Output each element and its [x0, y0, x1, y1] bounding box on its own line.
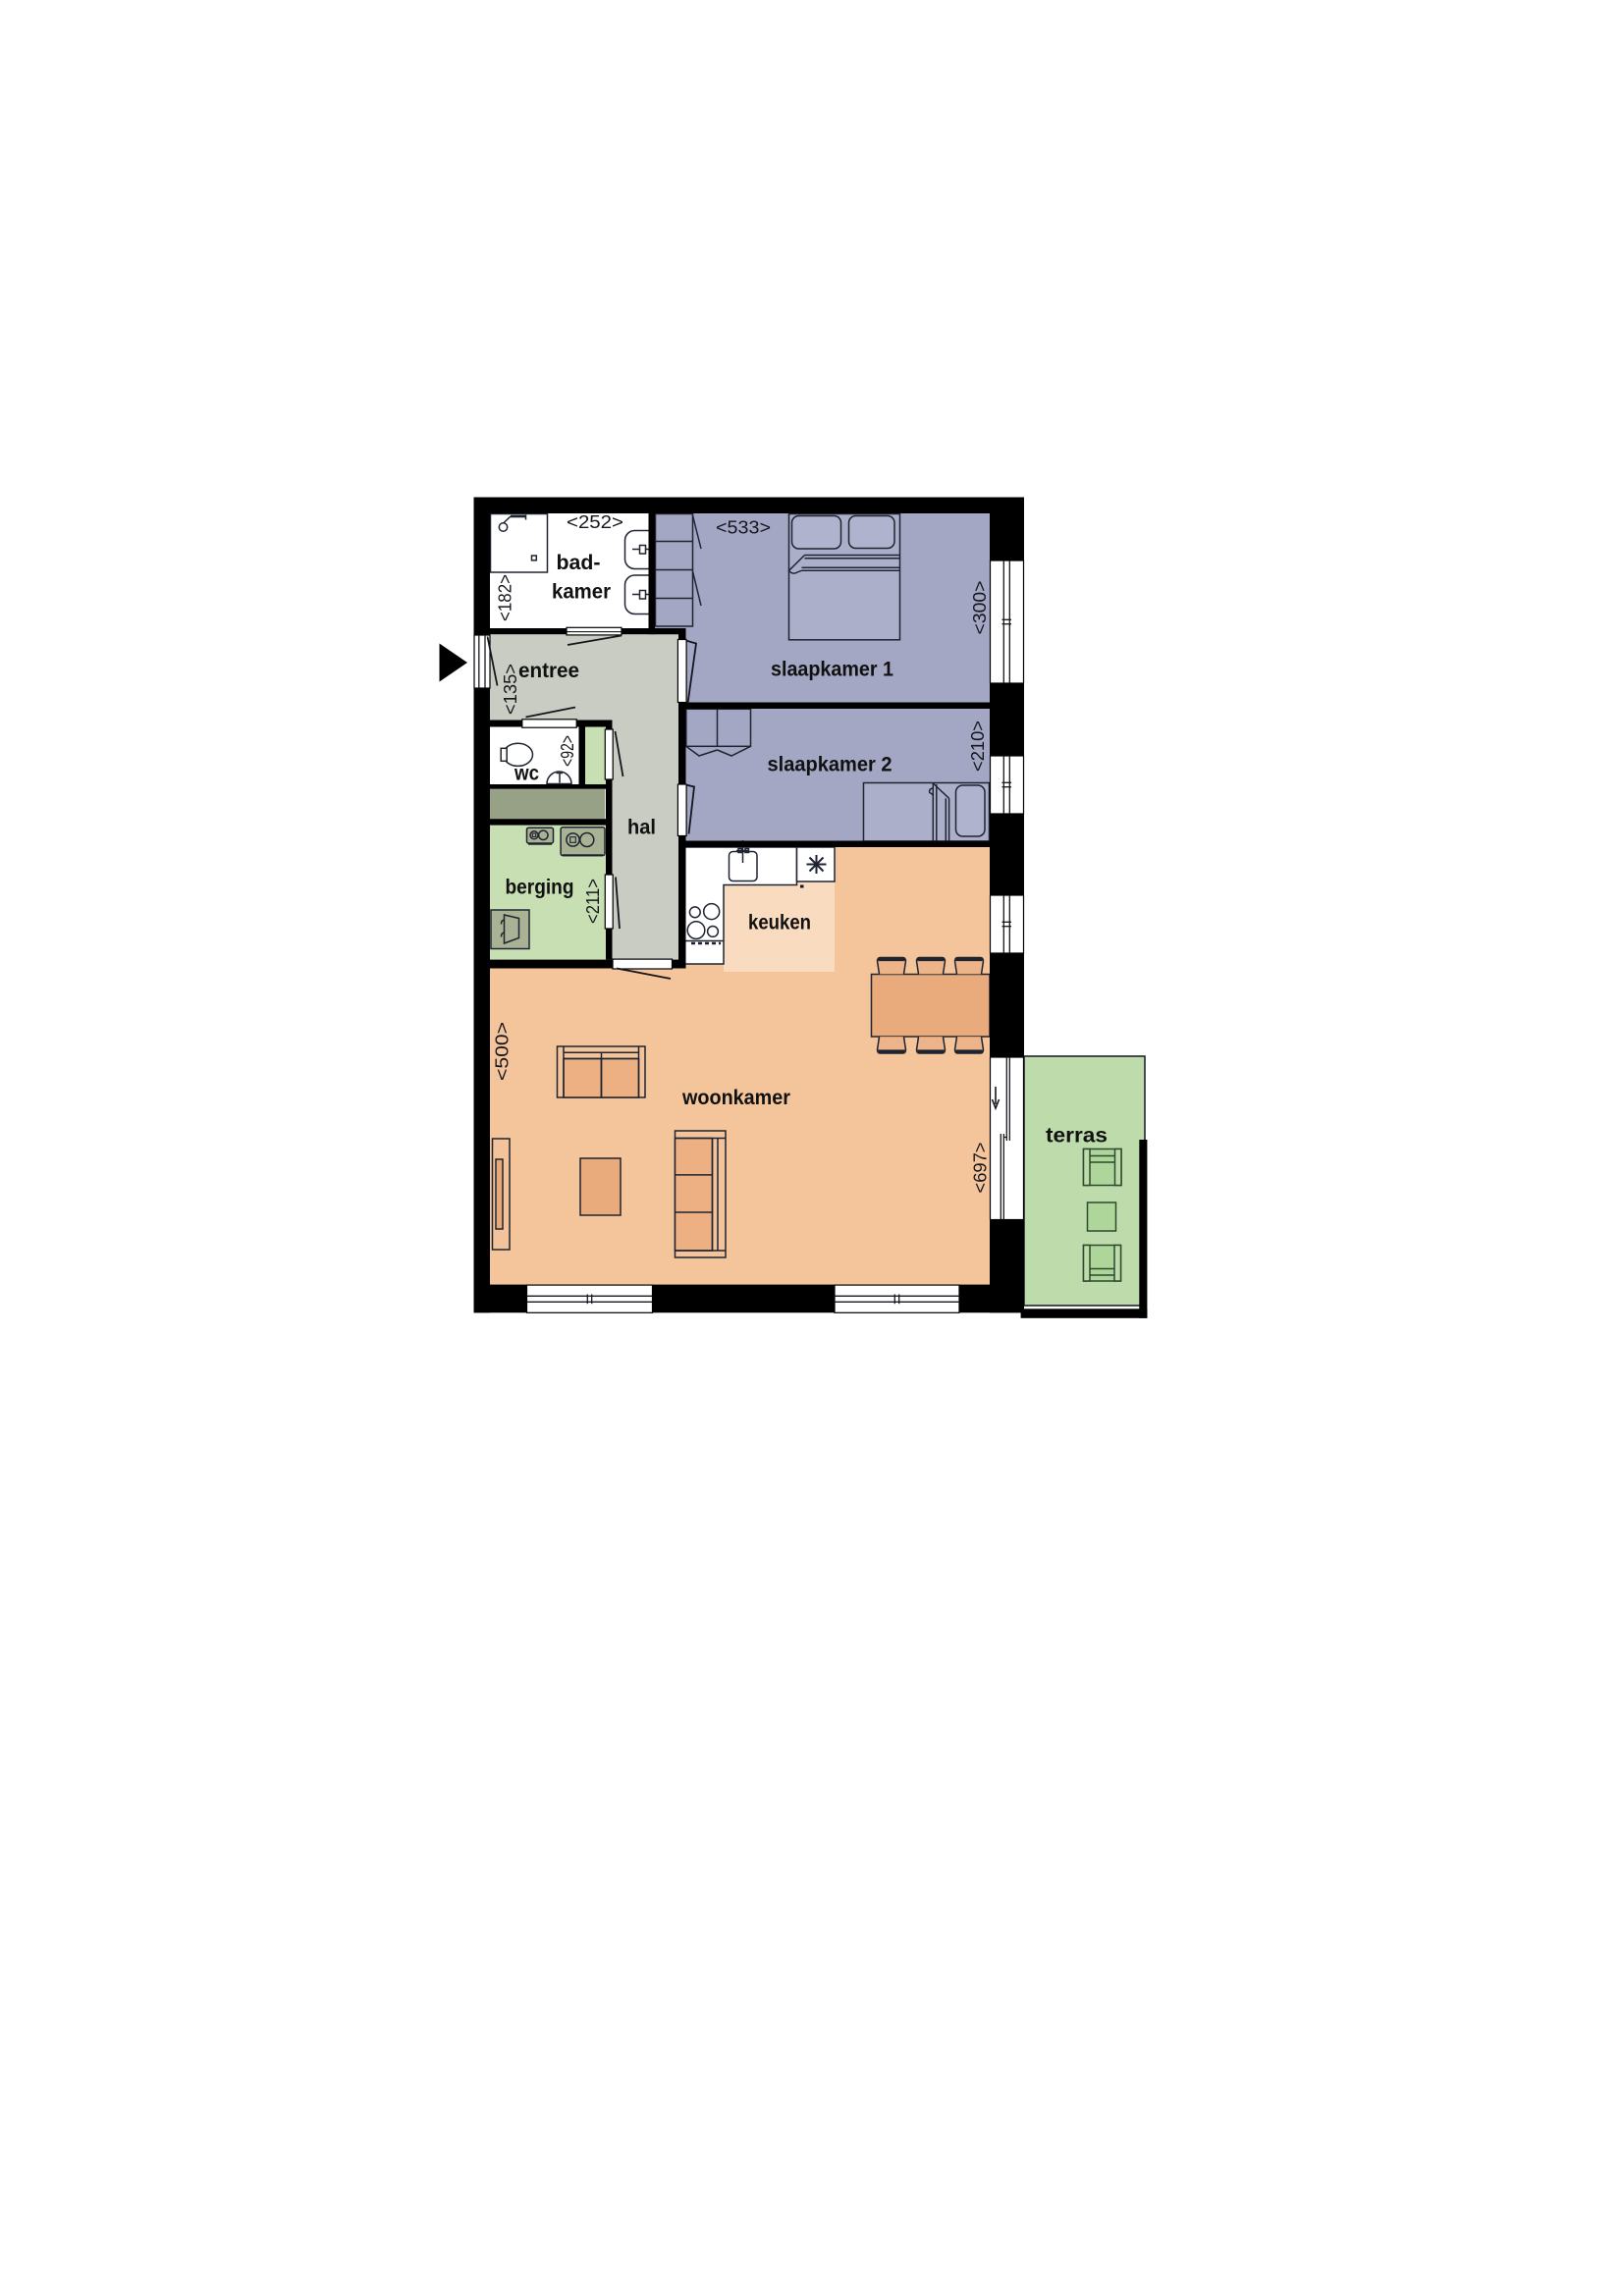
svg-text:slaapkamer 1: slaapkamer 1	[771, 659, 893, 681]
svg-text:keuken: keuken	[748, 912, 811, 934]
svg-text:terras: terras	[1046, 1125, 1108, 1148]
svg-text:<697>: <697>	[971, 1143, 991, 1194]
svg-text:hal: hal	[627, 817, 656, 839]
svg-text:<92>: <92>	[558, 735, 577, 767]
svg-text:berging: berging	[506, 877, 574, 899]
svg-text:<533>: <533>	[716, 518, 771, 538]
svg-text:<211>: <211>	[583, 879, 603, 924]
svg-text:wc: wc	[514, 763, 539, 785]
svg-text:kamer: kamer	[552, 581, 611, 604]
svg-text:entree: entree	[518, 660, 579, 682]
svg-text:<300>: <300>	[970, 581, 990, 635]
svg-text:woonkamer: woonkamer	[681, 1087, 790, 1109]
svg-text:slaapkamer 2: slaapkamer 2	[768, 754, 893, 776]
svg-text:<500>: <500>	[493, 1022, 513, 1081]
svg-text:<210>: <210>	[968, 721, 988, 772]
svg-text:<252>: <252>	[567, 512, 623, 532]
svg-text:<135>: <135>	[501, 664, 520, 715]
svg-text:bad-: bad-	[557, 552, 601, 574]
svg-text:<182>: <182>	[496, 574, 515, 621]
